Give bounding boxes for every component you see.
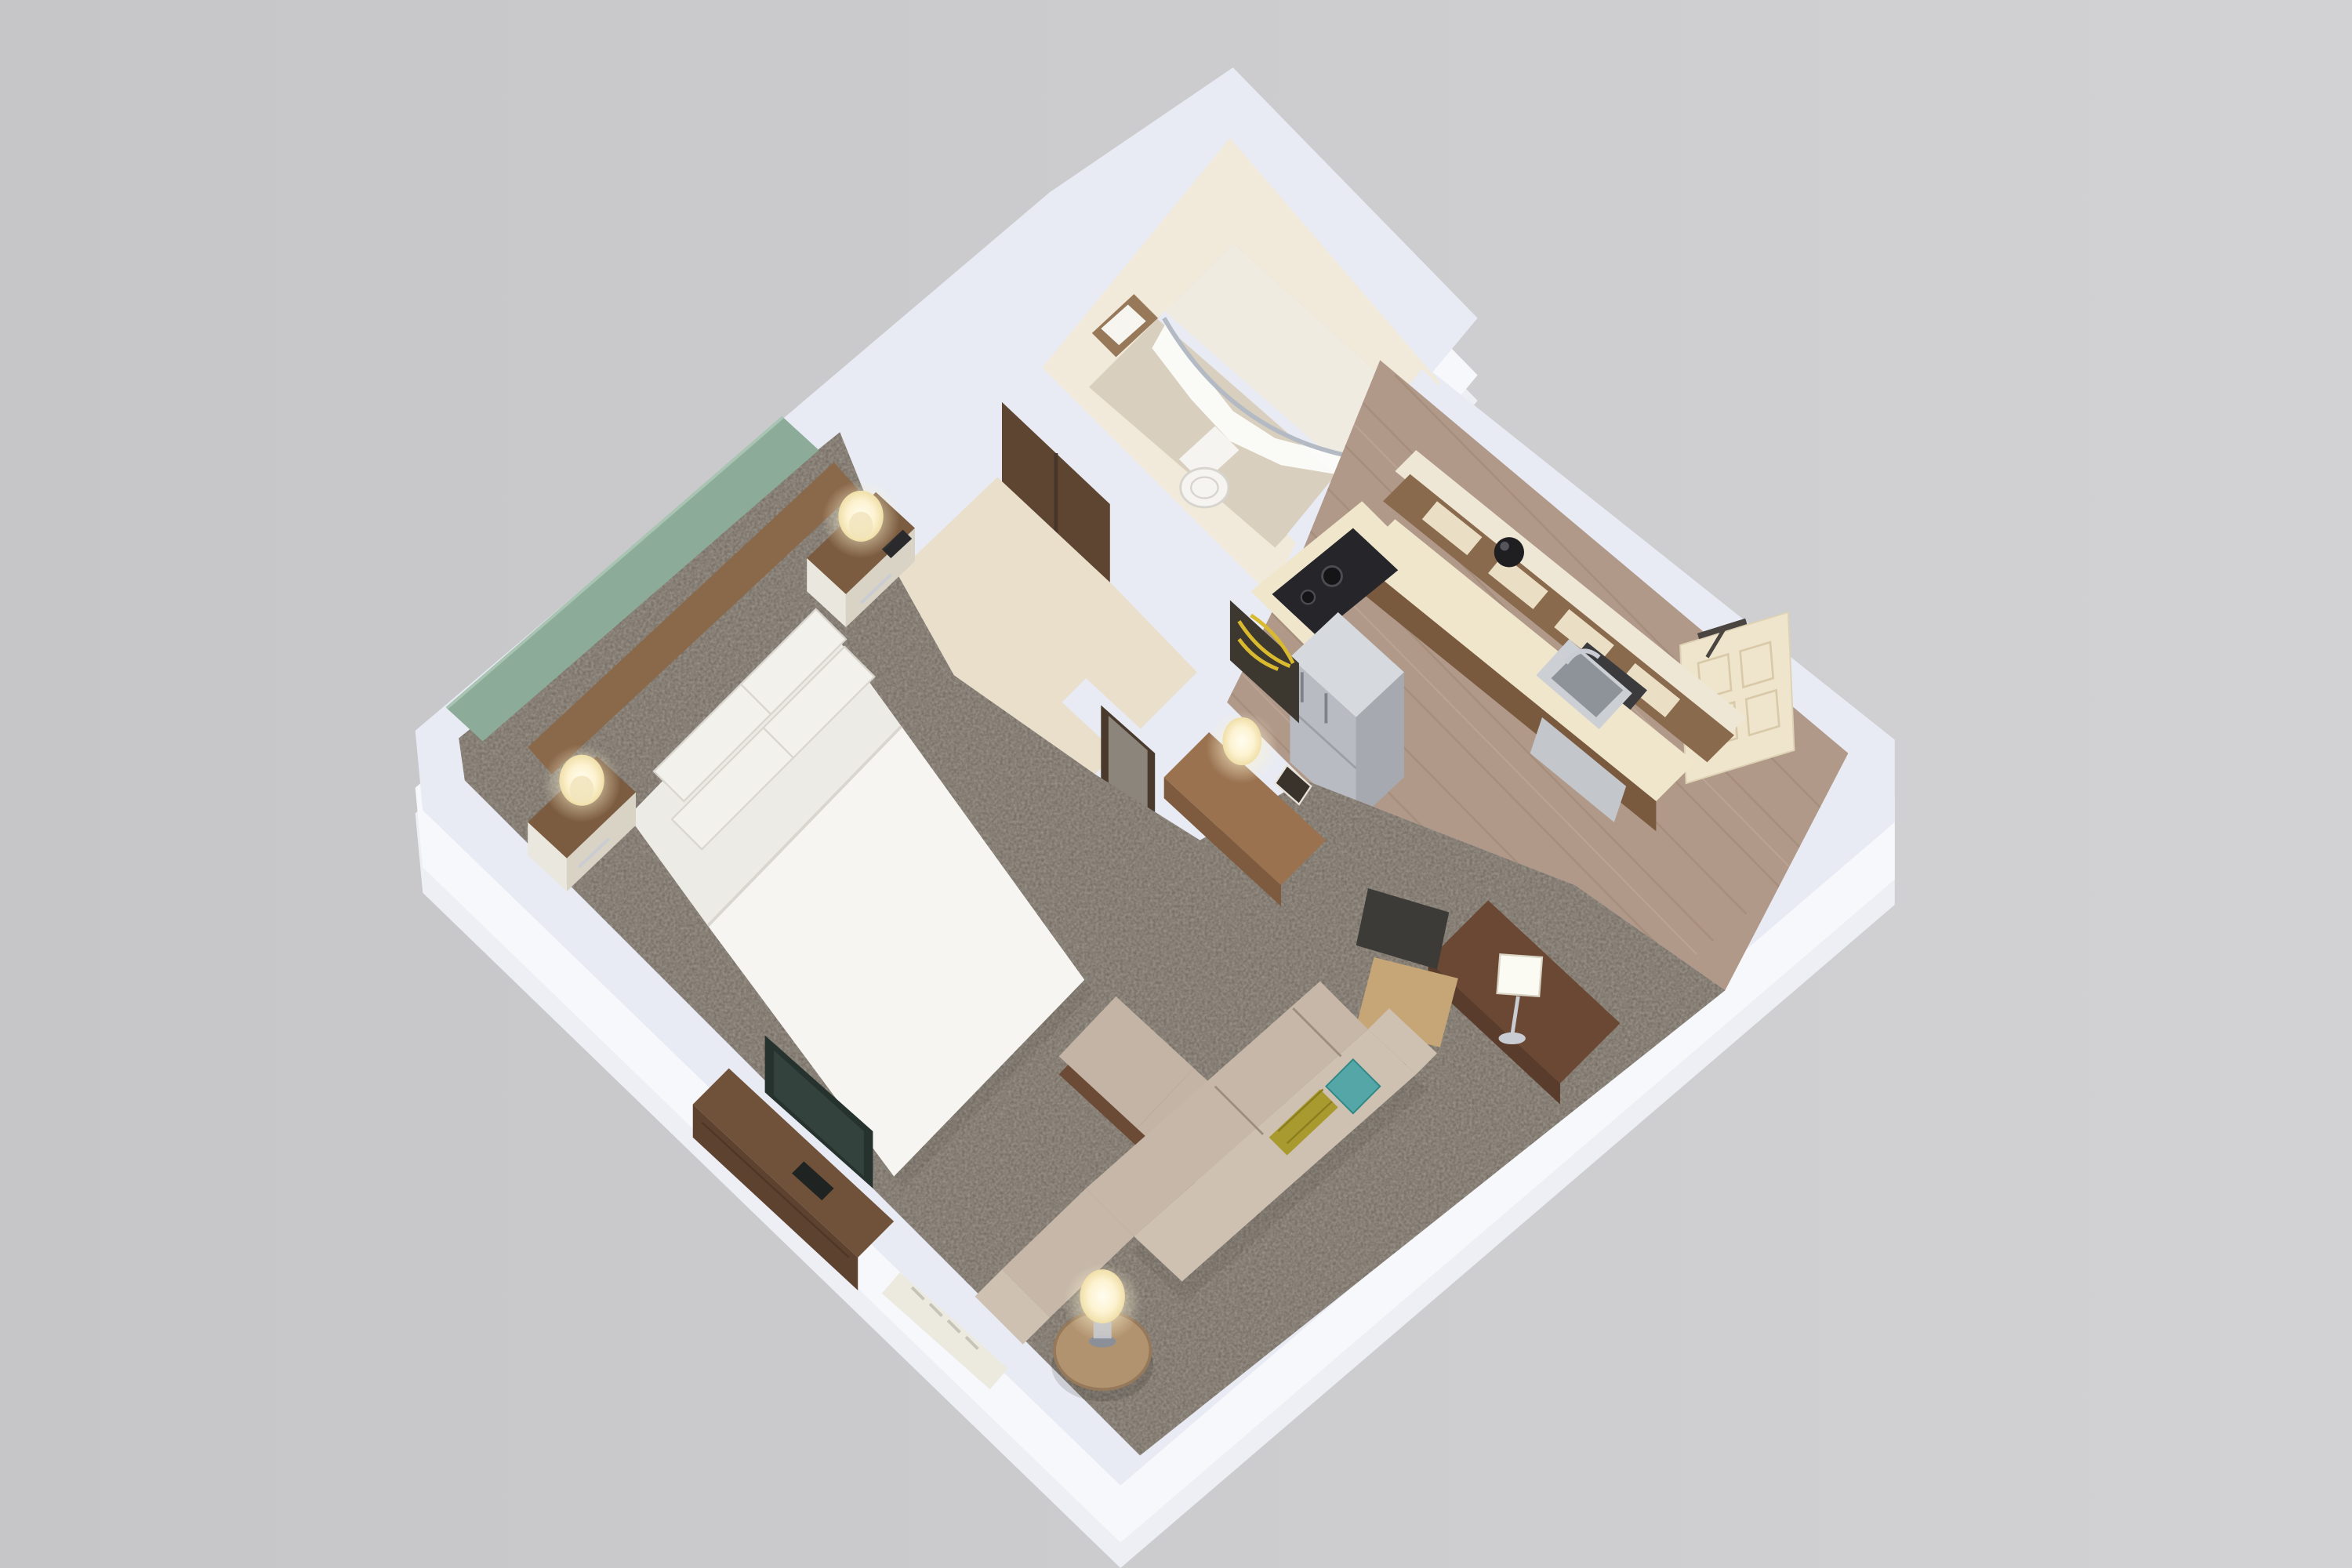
floor-plan-3d-render — [0, 0, 2352, 1568]
desk-lamp-shade — [1497, 954, 1542, 996]
console-lamp — [1222, 717, 1261, 765]
desk-lamp-base — [1498, 1033, 1525, 1044]
table-lamp-shade — [1080, 1269, 1125, 1323]
coffee-maker — [1494, 537, 1524, 567]
toilet-bowl — [1181, 468, 1229, 507]
coffee-maker-lid — [1500, 542, 1508, 550]
lamp-inner — [570, 775, 594, 802]
floor-plan-canvas — [0, 0, 2352, 1568]
burner-icon-small — [1301, 590, 1315, 604]
burner-icon — [1323, 566, 1342, 586]
lamp-inner — [849, 512, 873, 539]
